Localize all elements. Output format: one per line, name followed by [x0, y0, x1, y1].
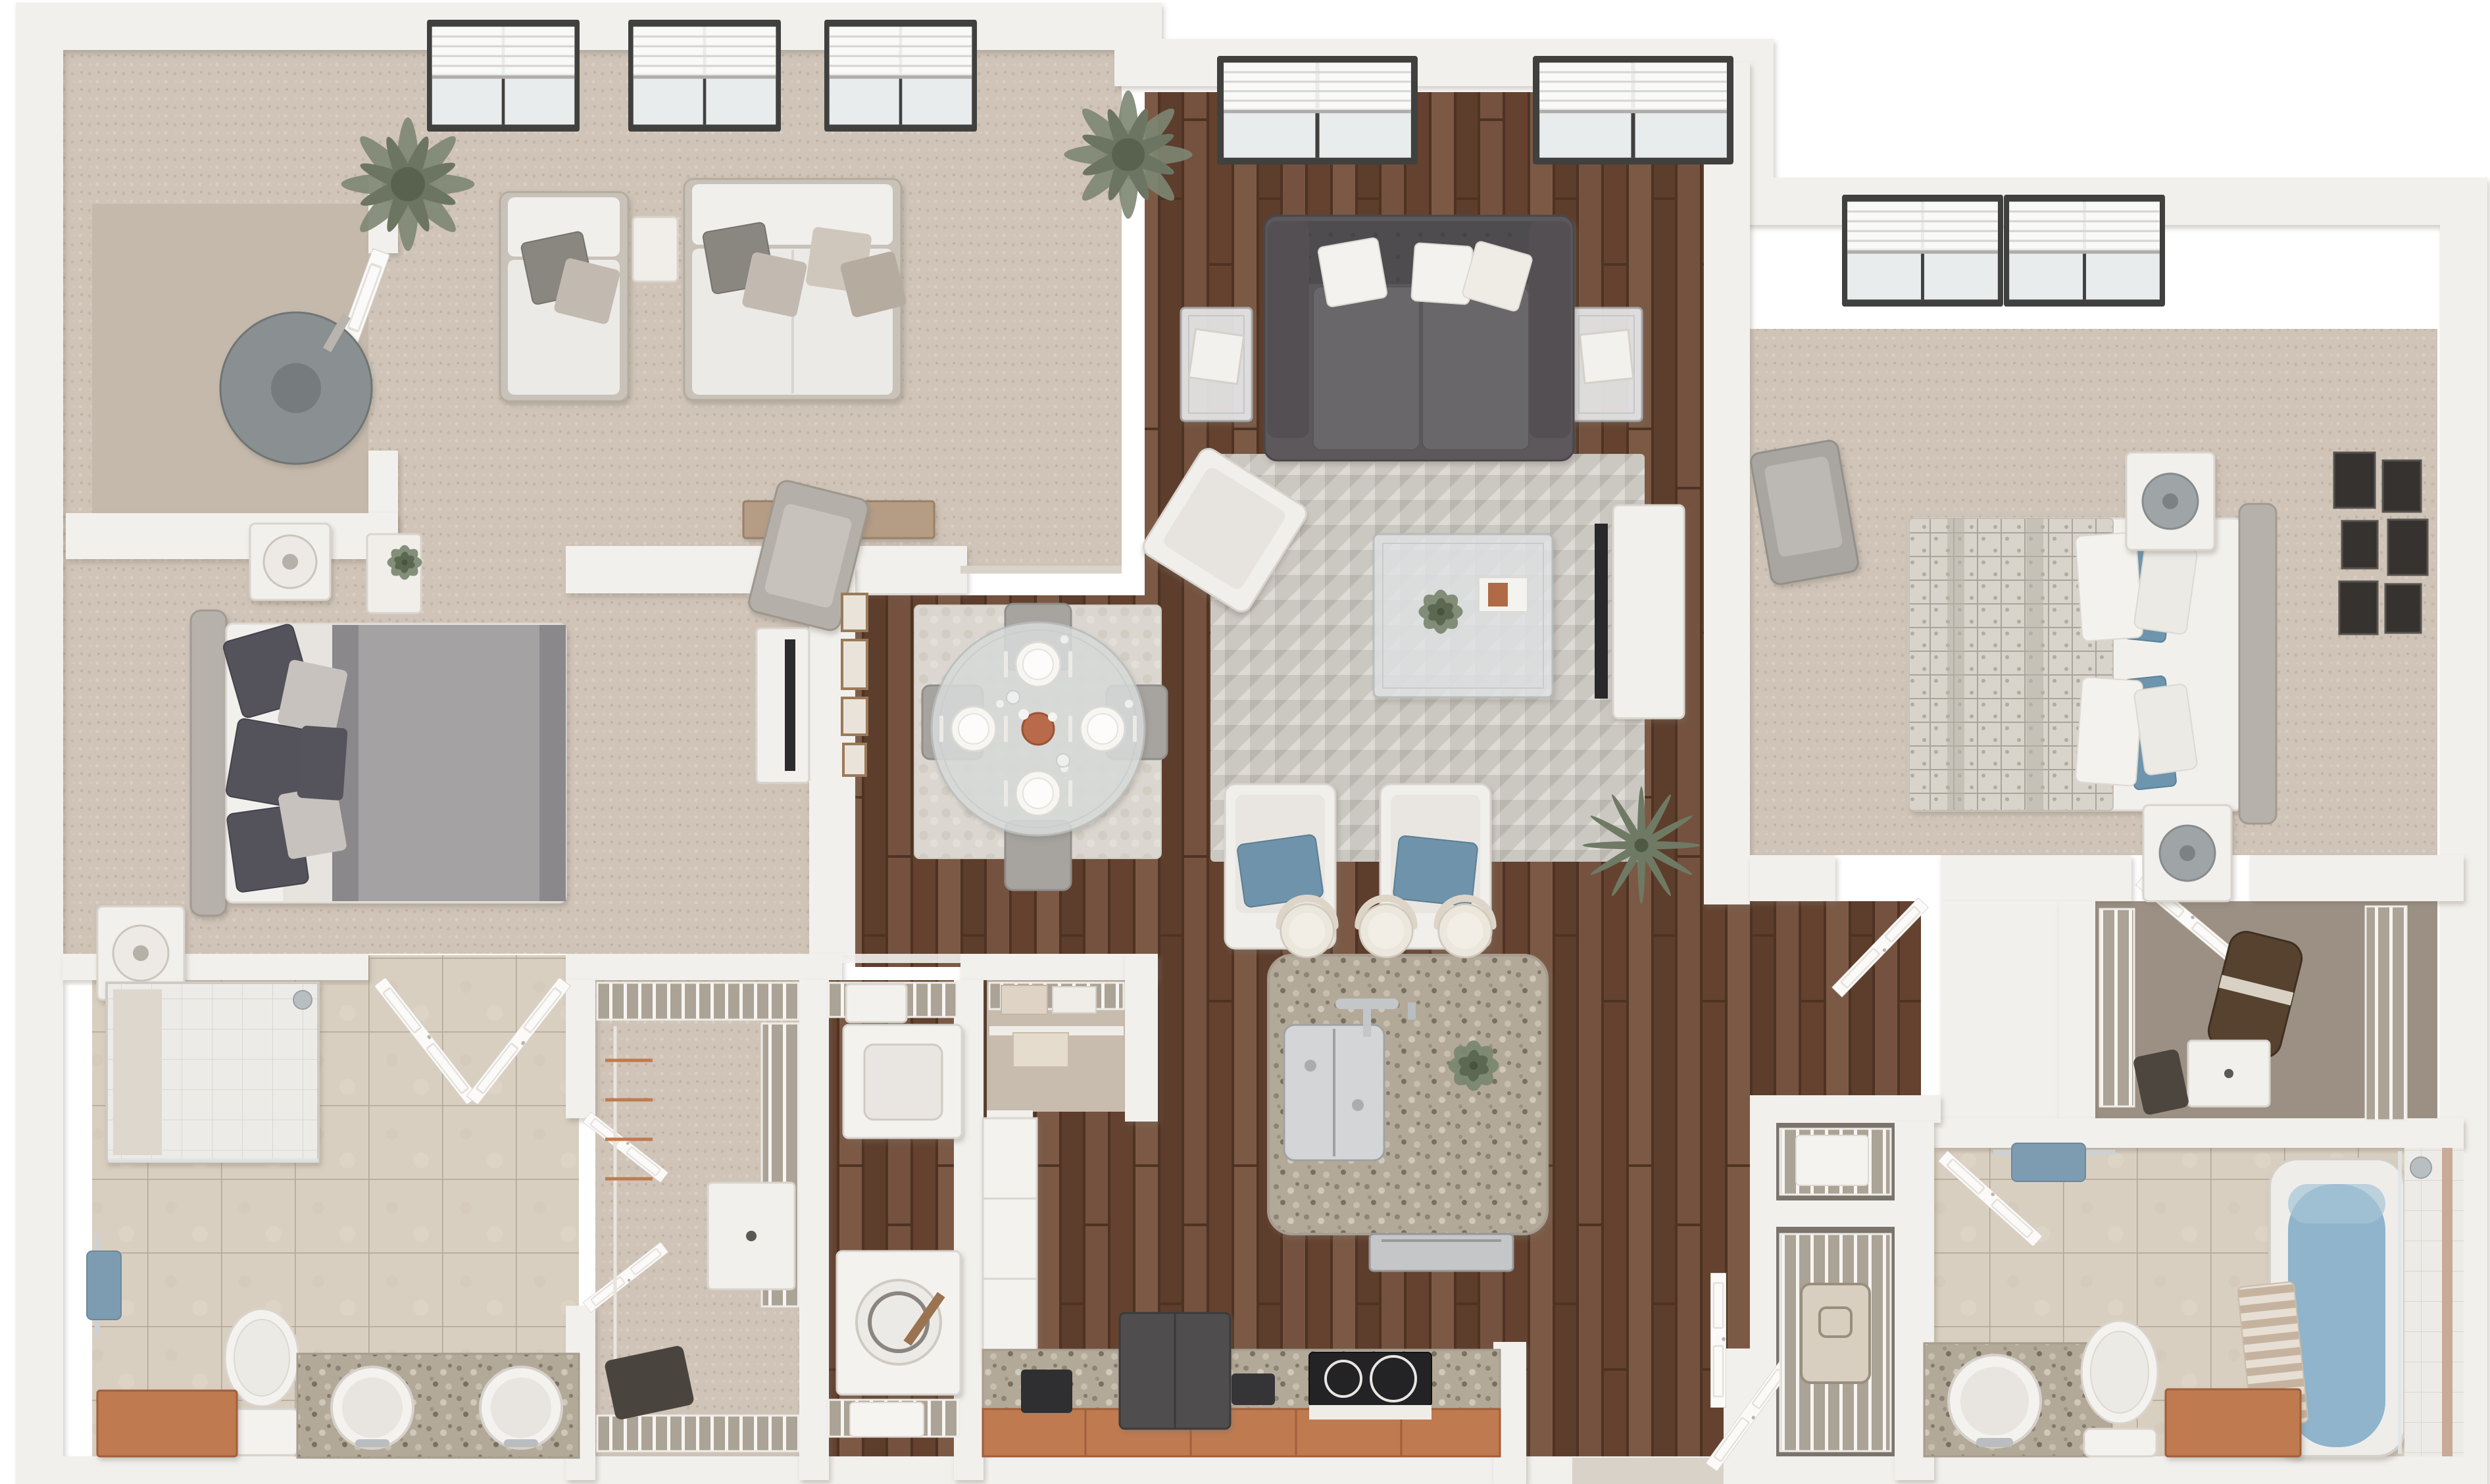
wall-closet2-west — [2059, 901, 2095, 1122]
bed2-lamp-bottom-finial — [2179, 845, 2195, 861]
carpet-wood-transition — [960, 566, 1122, 574]
window-bed2-b — [2004, 195, 2165, 307]
wall-bed2-south-a — [1750, 855, 1835, 901]
wall-living-east — [1704, 62, 1750, 904]
closet2-shelf-left — [2100, 909, 2134, 1106]
bed1-tv — [785, 639, 795, 771]
bed1-headboard — [191, 610, 226, 916]
bed1-duvet — [332, 625, 566, 901]
coffee-maker — [1021, 1370, 1072, 1413]
bath2-sink-basin — [1960, 1367, 2029, 1435]
window-living-2 — [1533, 56, 1733, 164]
sofa-arm-right — [1529, 221, 1571, 438]
bath1-faucet-2 — [504, 1439, 538, 1447]
wall-bed2-south-b — [1941, 855, 2131, 901]
wall-laundry-header — [842, 954, 960, 963]
window-den-1 — [427, 20, 580, 132]
dining-glass-2 — [1057, 754, 1070, 767]
coffee-table-glass — [1374, 534, 1553, 697]
bath2-tile-surround — [2404, 1148, 2464, 1456]
pantry-box-1 — [1001, 985, 1047, 1014]
bed1-tv-console — [757, 628, 809, 783]
closet2-dresser-knob — [2224, 1069, 2233, 1078]
barstool-2 — [1358, 899, 1414, 958]
palm-plant-right — [1064, 91, 1193, 219]
wall-closet1-east — [799, 980, 829, 1480]
magazine-photo — [1488, 583, 1508, 606]
wall-bath2-north — [1934, 1118, 2464, 1148]
bath1-sink-1-basin — [342, 1377, 403, 1438]
wall-bath1-east-a — [566, 980, 595, 1118]
bath2-tile-accent-stripe — [2442, 1148, 2453, 1456]
wall-corridor-south — [1750, 1095, 1941, 1123]
coat-closet-suitcase — [1801, 1284, 1870, 1383]
dining-wall-frame-4 — [843, 744, 866, 776]
closet1-shelf-top — [597, 983, 799, 1020]
living-lamp-left — [1189, 329, 1244, 384]
dining-glass-1 — [1007, 691, 1020, 704]
bed2-gallery-frame-3 — [2342, 521, 2378, 568]
laundry-basket — [846, 984, 907, 1022]
window-den-2 — [628, 20, 781, 132]
bath2-toilet-seat — [2091, 1331, 2149, 1413]
wall-utility-south — [66, 513, 398, 559]
wall-row-north-b — [566, 954, 842, 980]
bath1-sink-2-basin — [491, 1377, 551, 1438]
wall-closets-west — [1750, 1122, 1776, 1480]
sofa-arm-left — [1267, 221, 1309, 438]
bed2-gallery-frame-4 — [2388, 520, 2428, 575]
entry-threshold — [1572, 1458, 1724, 1484]
barstool-3 — [1437, 899, 1493, 958]
island-faucet-neck — [1363, 1006, 1371, 1037]
bath2-toilet-tank — [2084, 1429, 2156, 1456]
pantry-box-3 — [1013, 1033, 1068, 1067]
closet1-dresser-knob — [746, 1231, 757, 1241]
bed2-gallery-frame-6 — [2385, 584, 2421, 633]
bed2-gallery-frame-1 — [2334, 453, 2375, 508]
wall-chase — [1941, 901, 2059, 1125]
bath2-shower-head — [2410, 1157, 2431, 1178]
toaster — [1232, 1373, 1275, 1405]
closet1-shelf-bottom — [597, 1416, 799, 1451]
bed2-gallery-frame-2 — [2383, 460, 2421, 512]
living-lamp-right — [1580, 330, 1633, 383]
bed2-lamp-top-finial — [2162, 493, 2178, 509]
window-bed2-a — [1842, 195, 2003, 307]
bath1-toilet-seat — [234, 1320, 289, 1396]
bed2-white-pillow-4 — [2133, 683, 2197, 776]
living-tv-console — [1613, 505, 1684, 718]
bath1-blue-towel — [87, 1251, 121, 1320]
bath1-terracotta-cabinet — [97, 1391, 237, 1456]
dining-wall-frame-1 — [842, 594, 867, 631]
closet2-shelf-right — [2366, 906, 2406, 1120]
floorplan-shapes — [39, 20, 2464, 1484]
floorplan-3d-render — [0, 0, 2490, 1484]
dining-wall-frame-3 — [842, 698, 867, 735]
floorplan-canvas — [0, 0, 2490, 1484]
bath1-shower-head — [293, 991, 312, 1009]
bed2-headboard — [2239, 504, 2276, 824]
bed1-duvet-band-foot — [539, 625, 566, 901]
bed1-lamp-top-finial — [282, 554, 298, 570]
bath2-faucet — [1976, 1438, 2013, 1447]
water-heater-cap — [271, 363, 321, 413]
island-sink-drain-1 — [1305, 1060, 1316, 1072]
wall-pantry-east — [1125, 954, 1158, 1122]
bed1-pillow-lumbar — [297, 726, 348, 801]
den-pillow-light-2 — [741, 251, 808, 318]
bath1-faucet-1 — [355, 1439, 389, 1447]
sofa-pillow-1 — [1318, 237, 1388, 308]
linen-towels — [1796, 1135, 1868, 1185]
laundry-towel — [850, 1402, 924, 1437]
bed2-white-pillow-3 — [2133, 543, 2197, 635]
dining-vase-flower-2 — [1048, 712, 1057, 722]
island-sink-drain-2 — [1352, 1099, 1364, 1111]
island-soap-dispenser — [1408, 1002, 1416, 1020]
bath1-shower-bench — [113, 989, 162, 1155]
bed2-duvet-stripe-2 — [2026, 518, 2043, 810]
dryer-door — [864, 1045, 942, 1120]
wall-closets-divider — [1776, 1200, 1895, 1227]
pantry-box-2 — [1053, 987, 1096, 1013]
dining-vase-flower-1 — [1018, 709, 1029, 720]
bath2-blue-towels — [2012, 1143, 2085, 1181]
window-den-3 — [824, 20, 977, 132]
wall-bed2-south-c — [2250, 855, 2464, 901]
palm-plant-left — [341, 118, 475, 251]
range-front-trim — [1309, 1405, 1432, 1420]
bathtub-water-highlight — [2288, 1184, 2385, 1224]
bed2-gallery-frame-5 — [2339, 581, 2378, 634]
window-living-1 — [1217, 56, 1418, 164]
bath2-terracotta-cabinet — [2166, 1389, 2301, 1456]
sofa-seat-cushion-1 — [1313, 287, 1420, 450]
door-coat-closet — [1710, 1273, 1726, 1408]
bed2-duvet-stripe-1 — [1947, 518, 1964, 810]
bed2-white-pillow-2 — [2076, 677, 2143, 786]
dining-wall-frame-2 — [842, 640, 867, 689]
kitchen-wall-cabinets — [983, 1118, 1037, 1360]
floor-bath1-threshold — [368, 955, 566, 981]
bed1-lamp-bottom-finial — [133, 945, 149, 961]
den-side-table — [633, 217, 678, 282]
barstool-1 — [1280, 899, 1335, 958]
living-tv — [1595, 524, 1608, 699]
